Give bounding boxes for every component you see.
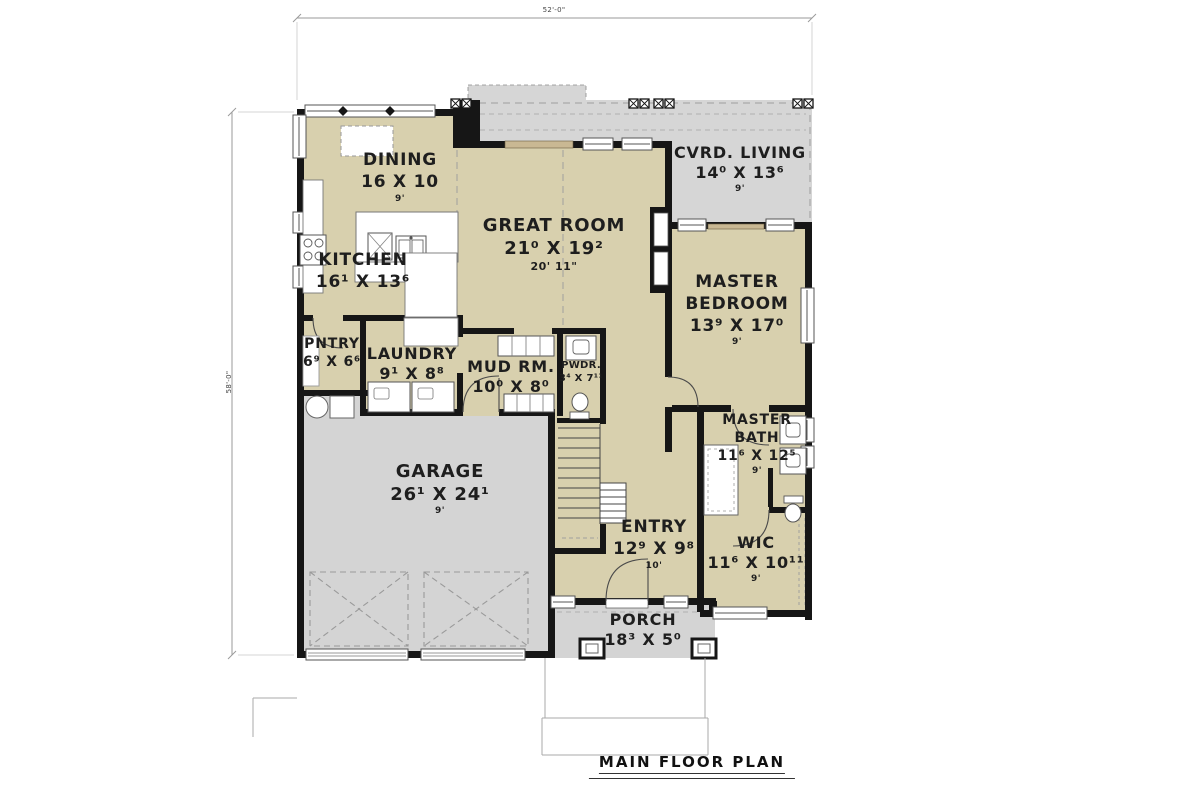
utility-sink-icon xyxy=(306,396,328,418)
room-ceiling: 9' xyxy=(685,337,788,349)
room-ceiling: 9' xyxy=(718,466,797,478)
room-name: LAUNDRY xyxy=(367,344,457,364)
room-label-wic: WIC 11⁶ X 10¹¹ 9' xyxy=(707,533,804,585)
dimension-overall-width: 52'-0" xyxy=(543,6,566,14)
room-name: ENTRY xyxy=(613,517,695,539)
laundry-counter xyxy=(404,318,458,346)
room-size: 21⁰ X 19² xyxy=(483,237,625,260)
room-ceiling: 20' 11" xyxy=(483,260,625,274)
room-size: 13⁹ X 17⁰ xyxy=(685,316,788,338)
site-lines xyxy=(253,658,708,755)
room-size: 11⁶ X 10¹¹ xyxy=(707,553,804,573)
room-name-2: BEDROOM xyxy=(685,294,788,316)
room-name: PWDR. xyxy=(559,360,603,373)
room-name: KITCHEN xyxy=(316,250,410,272)
room-label-master-bath: MASTER BATH 11⁶ X 12⁵ 9' xyxy=(718,412,797,477)
room-size: 16¹ X 13⁶ xyxy=(316,272,410,294)
floor-plan-drawing xyxy=(0,0,1200,800)
room-label-laundry: LAUNDRY 9¹ X 8⁸ xyxy=(367,344,457,385)
patio-sliding-door xyxy=(708,224,764,229)
room-label-pntry: PNTRY 6⁹ X 6⁶ xyxy=(303,336,361,372)
room-name: GARAGE xyxy=(390,460,489,483)
room-label-porch: PORCH 18³ X 5⁰ xyxy=(604,610,681,651)
room-size: 16 X 10 xyxy=(361,172,439,194)
toilet-icon xyxy=(784,496,803,503)
room-ceiling: 9' xyxy=(674,184,806,196)
room-label-pwdr: PWDR. 3⁴ X 7¹¹ xyxy=(559,360,603,386)
plan-title-text: MAIN FLOOR PLAN xyxy=(599,753,785,774)
room-label-great-room: GREAT ROOM 21⁰ X 19² 20' 11" xyxy=(483,214,625,274)
room-label-kitchen: KITCHEN 16¹ X 13⁶ xyxy=(316,250,410,294)
powder-toilet-icon xyxy=(570,412,589,419)
room-name: WIC xyxy=(707,533,804,553)
plan-title: MAIN FLOOR PLAN xyxy=(589,753,795,779)
room-size: 26¹ X 24¹ xyxy=(390,483,489,506)
dimension-overall-depth: 58'-0" xyxy=(225,371,233,394)
room-label-dining: DINING 16 X 10 9' xyxy=(361,150,439,205)
room-label-mud-rm: MUD RM. 10⁰ X 8⁰ xyxy=(467,357,555,398)
room-label-cvrd-living: CVRD. LIVING 14⁰ X 13⁶ 9' xyxy=(674,143,806,195)
water-heater-icon xyxy=(330,396,354,418)
room-size: 9¹ X 8⁸ xyxy=(367,364,457,384)
floor-plan: DINING 16 X 10 9' KITCHEN 16¹ X 13⁶ GREA… xyxy=(0,0,1200,800)
room-size: 6⁹ X 6⁶ xyxy=(303,354,361,372)
room-name: GREAT ROOM xyxy=(483,214,625,237)
room-size: 12⁹ X 9⁸ xyxy=(613,539,695,561)
room-ceiling: 10' xyxy=(613,561,695,573)
room-ceiling: 9' xyxy=(707,574,804,586)
room-name: PNTRY xyxy=(303,336,361,354)
room-name: CVRD. LIVING xyxy=(674,143,806,163)
room-size: 10⁰ X 8⁰ xyxy=(467,377,555,397)
room-name: MASTER xyxy=(685,272,788,294)
room-size: 3⁴ X 7¹¹ xyxy=(559,373,603,386)
room-name: PORCH xyxy=(604,610,681,630)
room-size: 18³ X 5⁰ xyxy=(604,630,681,650)
room-size: 11⁶ X 12⁵ xyxy=(718,448,797,466)
room-ceiling: 9' xyxy=(390,506,489,518)
room-label-garage: GARAGE 26¹ X 24¹ 9' xyxy=(390,460,489,518)
fridge-pantry-cabinet xyxy=(405,253,457,317)
sliding-door xyxy=(505,141,573,148)
room-label-master-bedroom: MASTER BEDROOM 13⁹ X 17⁰ 9' xyxy=(685,272,788,349)
front-door-threshold xyxy=(606,599,648,608)
garage-area xyxy=(300,393,552,655)
room-name: DINING xyxy=(361,150,439,172)
room-name: MUD RM. xyxy=(467,357,555,377)
room-name-2: BATH xyxy=(718,430,797,448)
room-size: 14⁰ X 13⁶ xyxy=(674,163,806,183)
room-ceiling: 9' xyxy=(361,194,439,206)
room-name: MASTER xyxy=(718,412,797,430)
room-label-entry: ENTRY 12⁹ X 9⁸ 10' xyxy=(613,517,695,572)
